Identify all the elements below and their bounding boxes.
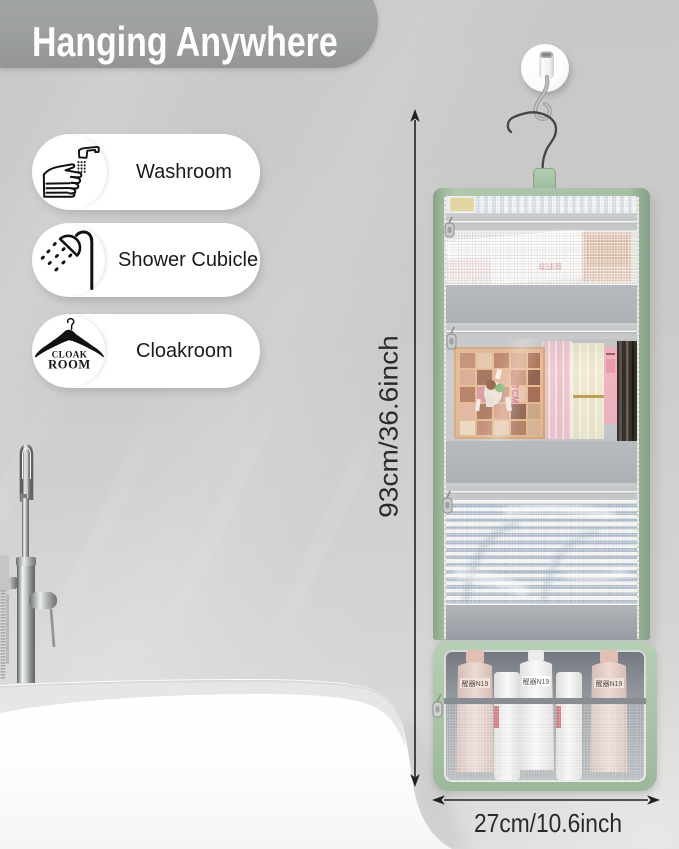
svg-text:醒器N19: 醒器N19 [462, 680, 489, 688]
svg-text:醒器N19: 醒器N19 [523, 678, 550, 686]
svg-text:ROOM: ROOM [48, 358, 91, 372]
svg-text:醒器N19: 醒器N19 [596, 680, 623, 688]
